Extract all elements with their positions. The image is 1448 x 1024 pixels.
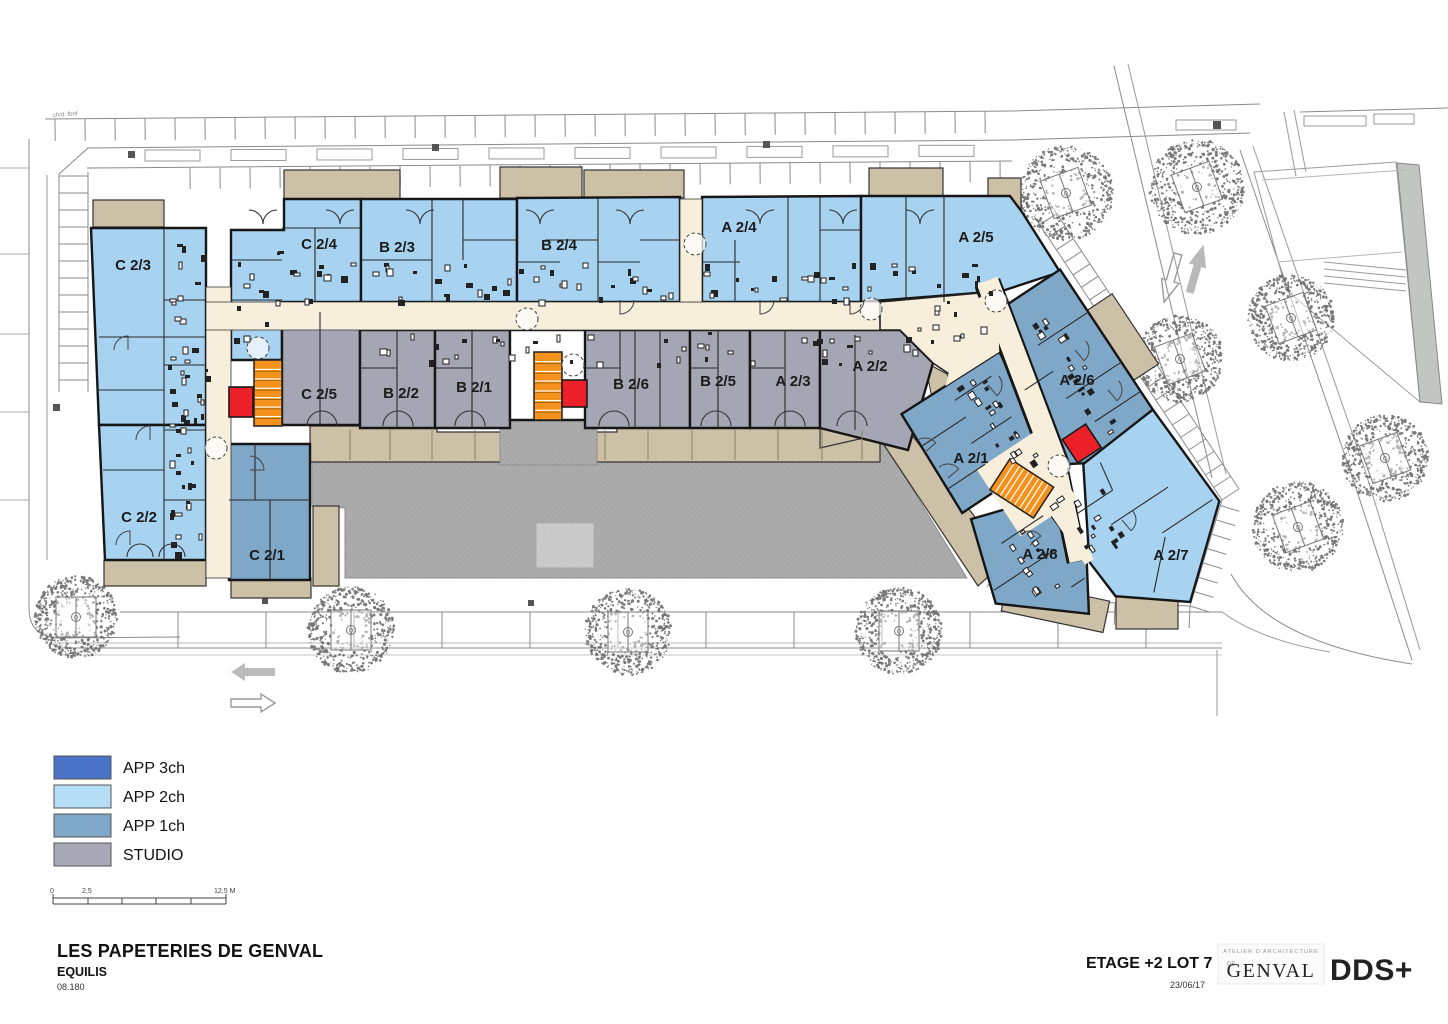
svg-text:Q: Q — [74, 616, 79, 622]
svg-text:Q: Q — [897, 630, 902, 636]
svg-text:Q: Q — [349, 629, 354, 635]
svg-text:Q: Q — [626, 631, 631, 637]
